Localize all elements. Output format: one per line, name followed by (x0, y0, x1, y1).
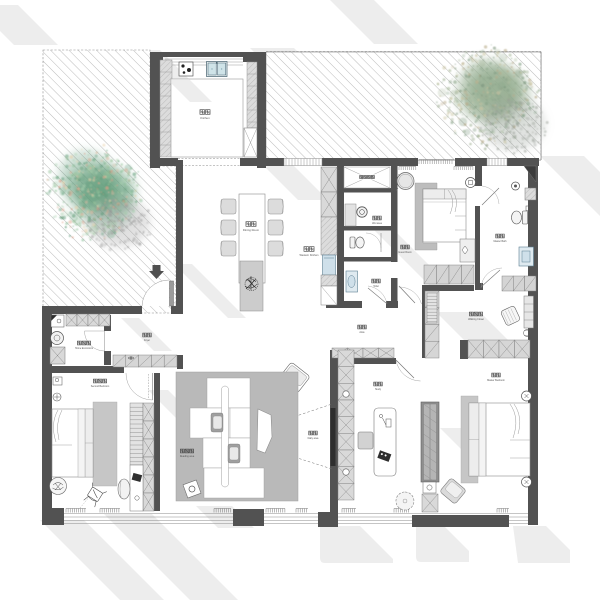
svg-text:Toilet: Toilet (373, 285, 379, 288)
svg-text:Walking Closet: Walking Closet (468, 318, 484, 321)
svg-text:Master Bath: Master Bath (494, 240, 508, 243)
svg-text:Reading area: Reading area (180, 455, 195, 458)
svg-text:Western Kitchen: Western Kitchen (300, 253, 320, 257)
svg-text:Daily area: Daily area (308, 437, 319, 440)
svg-text:Home Economics: Home Economics (75, 348, 94, 350)
svg-text:Second Bedroom: Second Bedroom (91, 385, 109, 388)
svg-text:Foyer: Foyer (144, 339, 150, 342)
svg-text:Guest Room: Guest Room (398, 251, 411, 254)
svg-text:Kitchen: Kitchen (200, 116, 210, 120)
svg-text:Study: Study (375, 388, 382, 391)
svg-text:Aisle: Aisle (359, 331, 365, 334)
svg-text:Master Bedroom: Master Bedroom (487, 379, 505, 382)
svg-text:Dining Room: Dining Room (243, 228, 260, 232)
svg-text:Wet area: Wet area (372, 222, 382, 225)
